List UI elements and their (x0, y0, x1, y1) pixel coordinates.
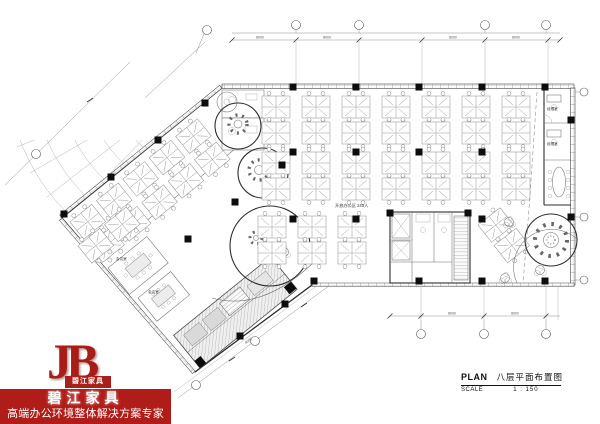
scale-value: 1 : 150 (513, 387, 538, 393)
open-office-label: 开放办公区 240人 (335, 202, 369, 209)
dim-label-top-1: 8000 (256, 35, 264, 39)
brand-banner: 碧江家具 高端办公环境整体解决方案专家 (0, 389, 171, 424)
dim-label-bottom-1: 8000 (448, 312, 456, 316)
dim-label-top-4: 8000 (512, 35, 520, 39)
dim-label-top-2: 8000 (323, 35, 331, 39)
meeting-room-label-1: 会议室 (116, 256, 127, 261)
dim-label-bottom-2: 8000 (511, 312, 519, 316)
company-name: 碧江家具 (0, 389, 171, 407)
title-block: PLAN 八层平面布置图 SCALE 1 : 150 (461, 371, 561, 393)
dim-label-top-3: 8000 (449, 35, 457, 39)
plan-label: PLAN (461, 372, 488, 382)
manager-office-label-1: 经理室 (547, 106, 558, 111)
drawing-title: 八层平面布置图 (497, 371, 564, 383)
service-core (390, 212, 470, 283)
window-wall-top (222, 84, 574, 89)
grid-bubbles-bottom (417, 320, 551, 339)
manager-office-label-2: 经理室 (547, 141, 558, 146)
grid-bubbles-top (196, 21, 551, 54)
scale-label: SCALE (461, 387, 483, 393)
company-tagline: 高端办公环境整体解决方案专家 (0, 407, 171, 421)
grid-bubbles-right (575, 88, 588, 284)
screenshot-canvas: 开放办公区 240人 经理室 经理室 会议室 会议室 8000 8000 800… (0, 0, 600, 424)
meeting-room-label-2: 会议室 (148, 289, 159, 294)
logo-monogram-label: 碧江家具 (65, 376, 111, 388)
